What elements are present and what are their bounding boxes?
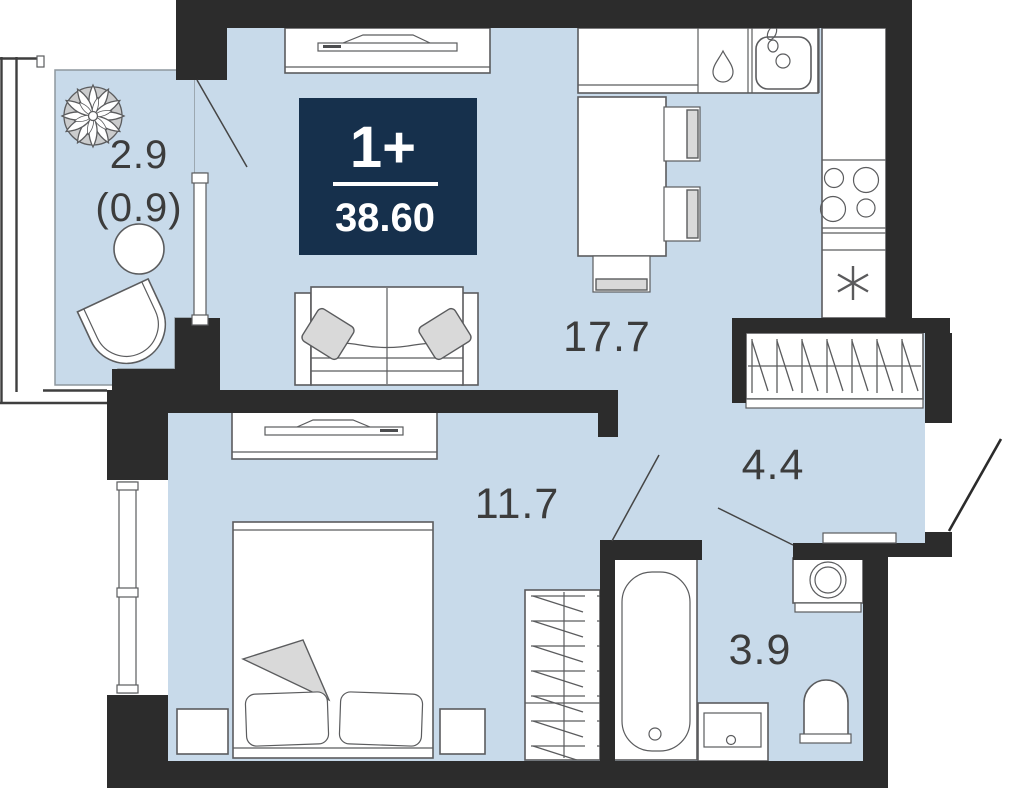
nightstand-icon (177, 709, 228, 754)
badge-type-label: 1+ (350, 115, 416, 180)
balcony-doorway-floor (195, 80, 205, 173)
round-table-icon (114, 224, 164, 274)
balcony-reduced-area-label: (0.9) (95, 186, 182, 230)
chair-icon (664, 107, 700, 161)
hallway-area-label: 4.4 (742, 441, 805, 489)
window-icon (117, 482, 138, 693)
bathroom-area-label: 3.9 (729, 626, 792, 674)
hall-closet-icon (746, 333, 923, 408)
nightstand-icon (440, 709, 485, 754)
toilet-icon (800, 680, 851, 743)
entrance-door-swing-icon (949, 439, 1001, 531)
vanity-sink-icon (698, 703, 768, 761)
entrance-threshold (823, 533, 896, 543)
bench-icon (593, 256, 650, 292)
badge-area-label: 38.60 (335, 196, 435, 240)
tv-console-icon (285, 28, 490, 73)
bedroom-area-label: 11.7 (475, 480, 560, 528)
dresser-icon (232, 412, 437, 459)
bathtub-icon (614, 559, 697, 760)
floorplan-svg: 2.9 (0.9) 17.7 11.7 4.4 3.9 1+ 38.60 (0, 0, 1014, 788)
wardrobe-icon (525, 590, 600, 760)
apartment-badge: 1+ 38.60 (299, 98, 477, 255)
washing-machine-icon (793, 558, 863, 612)
chair-icon (664, 187, 700, 241)
kitchen-counter-icon (578, 25, 818, 93)
floorplan: 2.9 (0.9) 17.7 11.7 4.4 3.9 1+ 38.60 (0, 0, 1014, 788)
balcony-area-label: 2.9 (110, 133, 169, 177)
kitchen-column (819, 28, 886, 318)
sofa-icon (295, 287, 478, 385)
window-icon (192, 173, 208, 325)
badge-divider (333, 182, 438, 186)
bed-icon (233, 522, 433, 758)
living-kitchen-area-label: 17.7 (563, 313, 651, 361)
